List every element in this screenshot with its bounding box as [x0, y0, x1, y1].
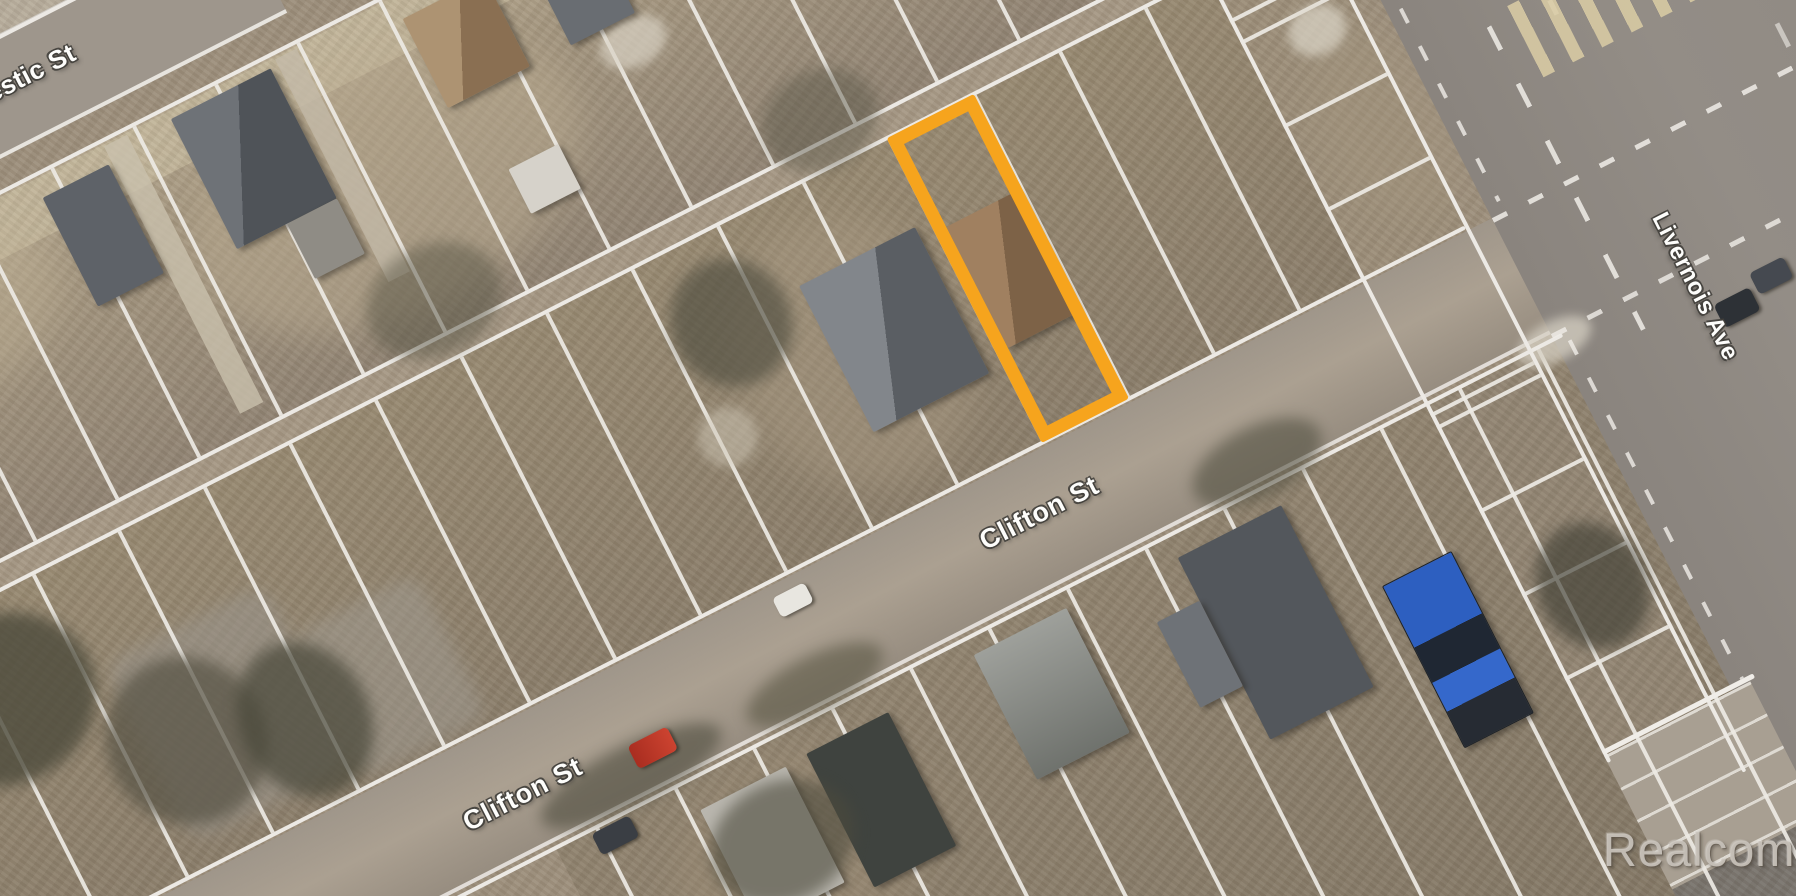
map-rotated-plane: estic St Clifton St Clifton St Livernois…: [0, 0, 1796, 896]
aerial-map[interactable]: estic St Clifton St Clifton St Livernois…: [0, 0, 1796, 896]
realcomp-watermark: Realcomp: [1603, 822, 1796, 877]
